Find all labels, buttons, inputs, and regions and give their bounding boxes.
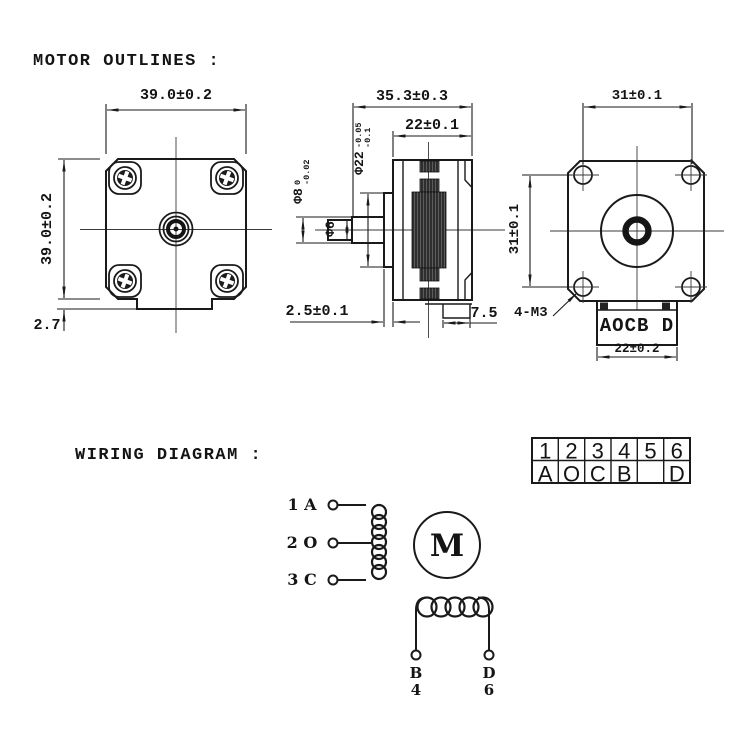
back-view: 31±0.1 31±0.1 4-M3 AOCB D 22±0.2 [507,88,724,361]
terminal-2o-label: 2 O [287,533,318,552]
terminal-2o: 2 O [287,533,372,552]
side-total-length-label: 35.3±0.3 [376,88,448,105]
side-pilot-dia-label: Φ22 [352,151,367,175]
technical-drawing-canvas: MOTOR OUTLINES : WIRING DIAGRAM : [0,0,750,750]
motor-drawing-page: MOTOR OUTLINES : WIRING DIAGRAM : [0,0,750,750]
front-screw-top-left [114,167,136,189]
back-connector-block: AOCB D 22±0.2 [597,301,677,361]
coil-vertical [372,505,386,579]
wiring-diagram-title: WIRING DIAGRAM : [75,446,262,465]
pin-signal-2: O [563,462,580,487]
side-connector-depth-label: 7.5 [470,305,497,322]
front-screw-bottom-left [114,270,136,292]
side-pilot-height-label: 2.5±0.1 [285,303,348,320]
pin-number-3: 3 [592,439,604,464]
lead-right-letter: D [482,664,495,682]
coil-lead-right [478,598,489,651]
side-connector [425,304,472,318]
wiring-schematic: 1 A 2 O 3 C M [287,495,496,699]
lead-left-letter: B [410,664,423,682]
lead-right-number: 6 [484,681,494,699]
terminal-1a: 1 A [287,495,366,514]
back-connector-pins-label: AOCB D [600,315,674,337]
pin-number-5: 5 [644,439,656,464]
front-screw-top-right [216,167,238,189]
terminal-2o-dot [329,539,338,548]
motor-symbol: M [414,512,480,578]
side-shaft-dia-tol-lower: -0.02 [302,159,312,185]
side-shaft-diameter-dimension: Φ8 0 -0.02 [291,159,352,243]
terminal-3c: 3 C [287,570,366,589]
lead-left-dot [412,651,421,660]
terminal-1a-label: 1 A [287,495,317,514]
terminal-3c-dot [329,576,338,585]
side-pilot-diameter-dimension: Φ22 -0.05 -0.1 [352,122,386,267]
back-connector-width-label: 22±0.2 [614,342,659,356]
lead-right-dot [485,651,494,660]
terminal-3c-label: 3 C [287,570,316,589]
pin-table: 1 2 3 4 5 6 A O C B D [532,438,690,487]
back-hole-spacing-h-label: 31±0.1 [612,88,662,104]
back-hole-spacing-v-label: 31±0.1 [507,204,523,254]
side-pilot-height-dimension: 2.5±0.1 [285,269,420,327]
pin-number-6: 6 [671,439,683,464]
front-width-label: 39.0±0.2 [140,87,212,104]
front-height-dimension: 39.0±0.2 [39,159,100,299]
back-hole-top-right [675,159,707,191]
front-view: 39.0±0.2 39.0±0.2 2.7 [33,87,272,334]
pin-signal-3: C [590,462,606,487]
side-body-length-dimension: 22±0.1 [393,117,471,157]
side-shaft-dia-label: Φ8 [291,188,306,204]
front-height-label: 39.0±0.2 [39,193,56,265]
pin-number-1: 1 [539,439,551,464]
back-screw-callout-label: 4-M3 [514,305,548,321]
side-shaft-tip-dia-label: Φ6 [323,221,338,237]
motor-symbol-letter: M [430,528,464,564]
front-step-dimension: 2.7 [33,288,137,334]
back-hole-spacing-h-dimension: 31±0.1 [583,88,692,164]
pin-signal-6: D [669,462,685,487]
side-body-length-label: 22±0.1 [405,117,459,134]
pin-number-2: 2 [565,439,577,464]
pin-signal-1: A [538,462,553,487]
back-connector-latch-right [662,303,670,310]
pin-signal-4: B [617,462,632,487]
side-pilot-dia-tol-lower: -0.1 [363,128,373,148]
side-stator-laminations [412,161,446,299]
side-view: 35.3±0.3 22±0.1 Φ22 -0.05 -0.1 Φ8 0 -0 [285,88,505,338]
back-connector-latch-left [600,303,608,310]
back-hole-bottom-right [675,271,707,303]
lead-left-number: 4 [411,681,421,699]
pin-number-4: 4 [618,439,630,464]
front-screw-bottom-right [216,270,238,292]
terminal-1a-dot [329,501,338,510]
back-screw-callout: 4-M3 [514,293,577,321]
side-connector-depth-dimension: 7.5 [443,305,498,328]
motor-outlines-title: MOTOR OUTLINES : [33,52,220,71]
front-step-label: 2.7 [33,317,60,334]
coil-horizontal [418,598,493,617]
